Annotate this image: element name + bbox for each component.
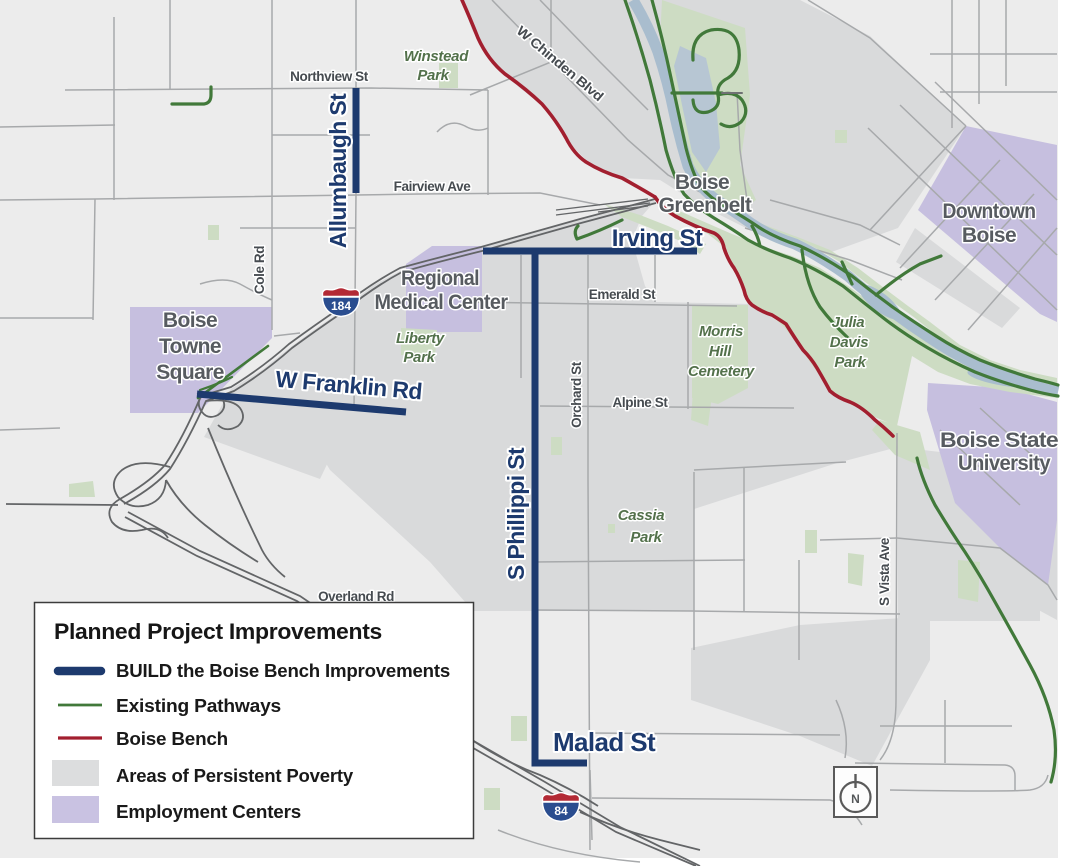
svg-text:Regional: Regional — [401, 267, 479, 290]
svg-text:Downtown: Downtown — [943, 200, 1036, 223]
svg-text:N: N — [851, 792, 860, 806]
svg-text:Malad St: Malad St — [553, 727, 656, 757]
svg-text:S Vista Ave: S Vista Ave — [877, 537, 892, 606]
svg-text:Hill: Hill — [709, 343, 732, 360]
svg-text:Cole Rd: Cole Rd — [252, 246, 267, 294]
svg-text:S Phillippi St: S Phillippi St — [503, 447, 529, 580]
svg-text:Cemetery: Cemetery — [688, 363, 755, 380]
svg-text:Davis: Davis — [830, 334, 869, 351]
svg-text:Square: Square — [156, 361, 224, 384]
svg-text:84: 84 — [554, 804, 568, 818]
svg-text:Northview St: Northview St — [290, 69, 369, 84]
svg-text:Boise: Boise — [962, 224, 1016, 247]
svg-text:Park: Park — [834, 354, 866, 371]
svg-text:184: 184 — [331, 299, 351, 313]
svg-text:Areas of Persistent Poverty: Areas of Persistent Poverty — [116, 765, 354, 786]
svg-text:Planned Project Improvements: Planned Project Improvements — [54, 619, 382, 644]
svg-text:Boise: Boise — [675, 171, 729, 194]
svg-text:Emerald St: Emerald St — [589, 287, 656, 302]
svg-text:Greenbelt: Greenbelt — [659, 194, 752, 217]
svg-text:Employment Centers: Employment Centers — [116, 801, 301, 822]
svg-text:Existing Pathways: Existing Pathways — [116, 695, 281, 716]
svg-text:Park: Park — [630, 529, 662, 546]
svg-text:Liberty: Liberty — [396, 330, 445, 347]
svg-text:BUILD the Boise Bench Improvem: BUILD the Boise Bench Improvements — [116, 660, 450, 681]
svg-text:Julia: Julia — [832, 314, 865, 331]
svg-text:Alpine St: Alpine St — [613, 395, 669, 410]
svg-text:Cassia: Cassia — [618, 507, 665, 524]
svg-text:Boise State: Boise State — [940, 429, 1058, 452]
svg-text:Park: Park — [417, 67, 449, 84]
svg-text:Park: Park — [403, 349, 435, 366]
svg-text:Morris: Morris — [699, 323, 743, 340]
svg-text:University: University — [958, 452, 1051, 475]
svg-text:Boise Bench: Boise Bench — [116, 728, 228, 749]
svg-text:Irving St: Irving St — [612, 225, 703, 252]
svg-text:Allumbaugh St: Allumbaugh St — [325, 93, 351, 248]
svg-text:Orchard St: Orchard St — [569, 361, 584, 428]
svg-text:Winstead: Winstead — [404, 48, 469, 65]
svg-text:Boise: Boise — [163, 309, 217, 332]
svg-text:Medical Center: Medical Center — [375, 291, 508, 314]
svg-text:Fairview Ave: Fairview Ave — [394, 179, 472, 194]
svg-text:Towne: Towne — [159, 335, 221, 358]
